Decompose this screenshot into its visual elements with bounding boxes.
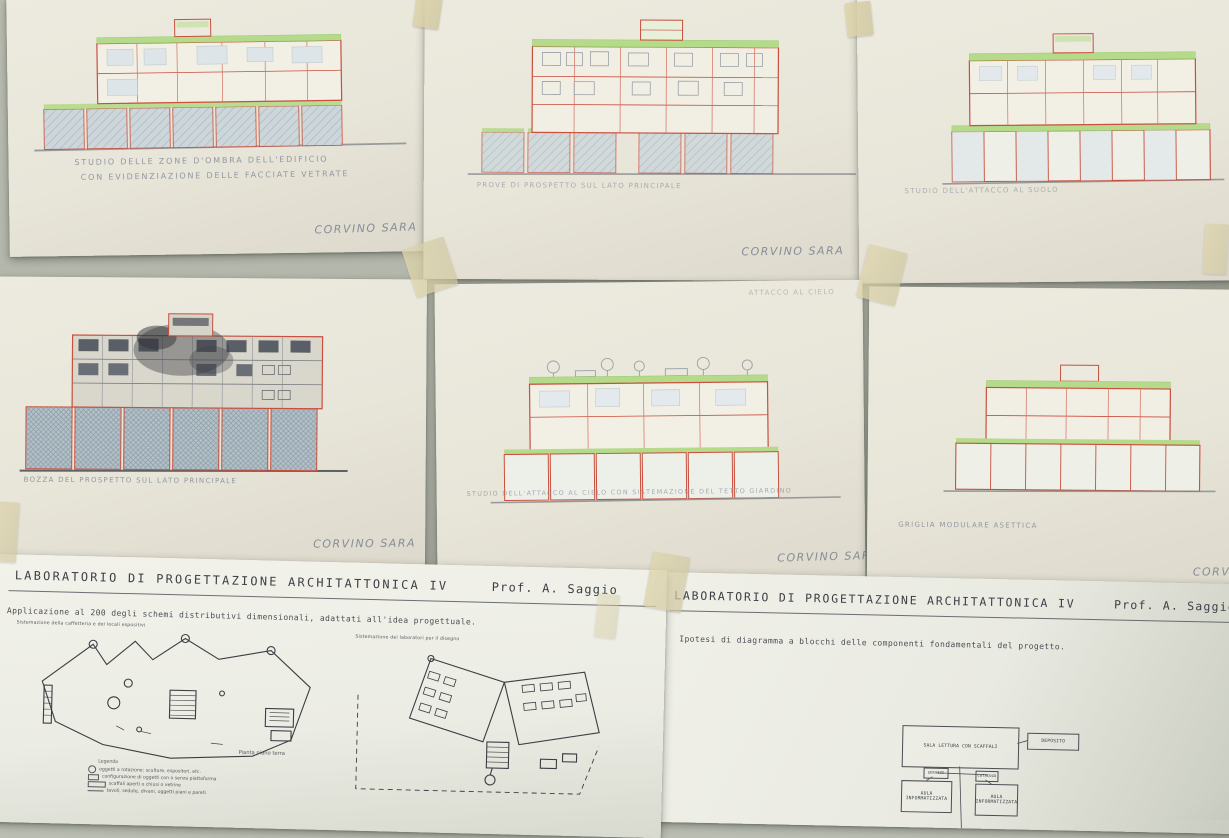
sheet-top-left: STUDIO DELLE ZONE D'OMBRA DELL'EDIFICIO … [6,0,430,257]
photo-of-drawings-wall: STUDIO DELLE ZONE D'OMBRA DELL'EDIFICIO … [0,0,1229,820]
floor-plan-labs [340,642,654,805]
elevation-drawing-main-elevation-test [423,0,867,281]
diagram-box-aula-left: AULA INFORMATIZZATA [901,780,953,813]
sheet-middle-right: GRIGLIA MODULARE ASETTICA CORVI [867,286,1229,584]
caption-draft-main-elevation: BOZZA DEL PROSPETTO SUL LATO PRINCIPALE [24,476,238,485]
caption-ground-attachment: STUDIO DELL'ATTACCO AL SUOLO [904,186,1059,195]
legend-rect-symbol [88,774,99,780]
lab-title: LABORATORIO DI PROGETTAZIONE ARCHITATTON… [674,588,1076,610]
sheet-bottom-left: LABORATORIO DI PROGETTAZIONE ARCHITATTON… [0,554,667,838]
sheet-bottom-right: LABORATORIO DI PROGETTAZIONE ARCHITATTON… [655,572,1229,834]
caption-main-elevation-test: PROVE DI PROSPETTO SUL LATO PRINCIPALE [477,181,682,190]
plan-caption-ground-floor: Pianta piano terra [239,750,286,757]
masking-tape [413,0,444,30]
elevation-drawing-draft-main-elevation [0,277,427,568]
diagram-box-deposito: DEPOSITO [1027,733,1079,751]
legend-shelf-symbol [88,781,106,787]
elevation-drawing-modular-grid [867,286,1229,584]
diagram-box-aula-right: AULA INFORMATIZZATA [975,784,1019,817]
legend-item-label: tavoli, sedute, divani, oggetti piani e … [107,788,206,797]
masking-tape [594,593,620,639]
elevation-drawing-shadow-study [6,0,430,257]
diagram-box-reading-room: SALA LETTURA CON SCAFFALI [902,725,1020,769]
signature-corvino-sara-partial: CORVI [1193,565,1229,578]
professor-name: Prof. A. Saggio [1114,597,1229,614]
plan-left-note: Sistemazione della caffetteria e dei loc… [17,620,146,628]
plan-legend: Legenda oggetti a rotazione: sculture, e… [88,758,217,797]
diagram-box-servizi: SERVIZI [923,768,948,780]
block-diagram: SALA LETTURA CON SCAFFALI DEPOSITO SERVI… [895,717,1087,831]
signature-corvino-sara: CORVINO SARA [313,537,416,551]
lab-title: LABORATORIO DI PROGETTAZIONE ARCHITATTON… [15,568,449,593]
sheet-top-center: PROVE DI PROSPETTO SUL LATO PRINCIPALE C… [423,0,867,281]
masking-tape [1203,223,1229,274]
signature-corvino-sara: CORVINO SARA [741,244,844,258]
elevation-drawing-ground-attachment [857,0,1229,284]
plan-right-note: Sistemazione dei laboratori per il diseg… [355,635,459,643]
sheet-middle-left: BOZZA DEL PROSPETTO SUL LATO PRINCIPALE … [0,277,427,568]
sheet-middle-center: ATTACCO AL CIELO [434,280,865,584]
sheet-top-right: STUDIO DELL'ATTACCO AL SUOLO [857,0,1229,284]
diagram-box-catalogo: CATALOGO [975,771,998,782]
legend-circle-symbol [88,765,96,773]
masking-tape [844,1,873,38]
sheet-subtitle: Ipotesi di diagramma a blocchi delle com… [679,634,1065,651]
caption-modular-grid: GRIGLIA MODULARE ASETTICA [898,521,1038,530]
legend-line-symbol [88,790,104,791]
elevation-drawing-roof-garden [434,280,865,584]
sheet-title: LABORATORIO DI PROGETTAZIONE ARCHITATTON… [674,588,1229,614]
